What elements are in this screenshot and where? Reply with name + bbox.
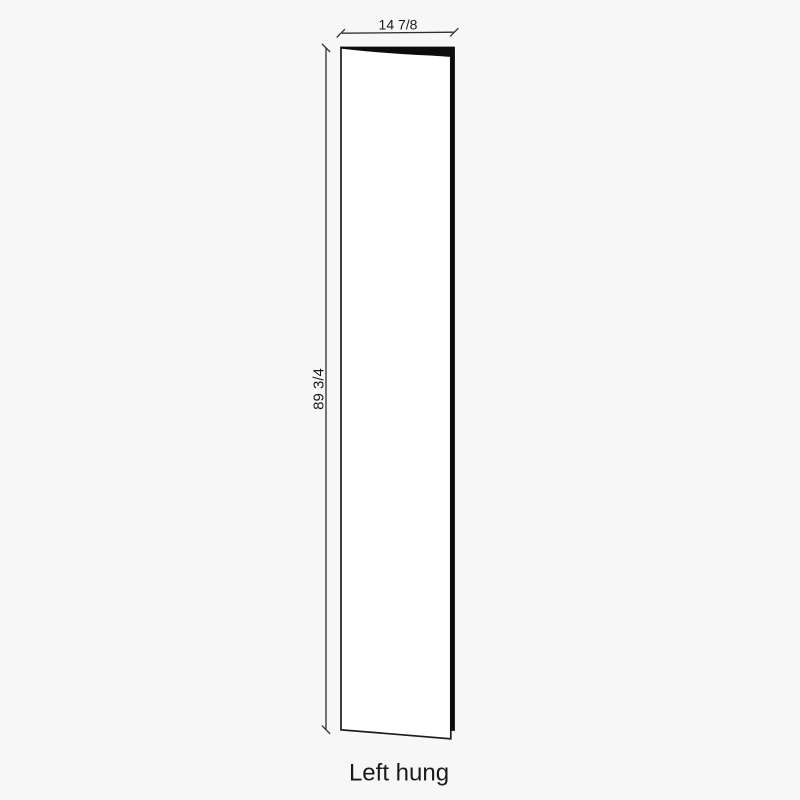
svg-text:Left hung: Left hung: [349, 760, 449, 787]
svg-text:89 3/4: 89 3/4: [311, 368, 328, 410]
svg-text:14 7/8: 14 7/8: [379, 17, 418, 33]
